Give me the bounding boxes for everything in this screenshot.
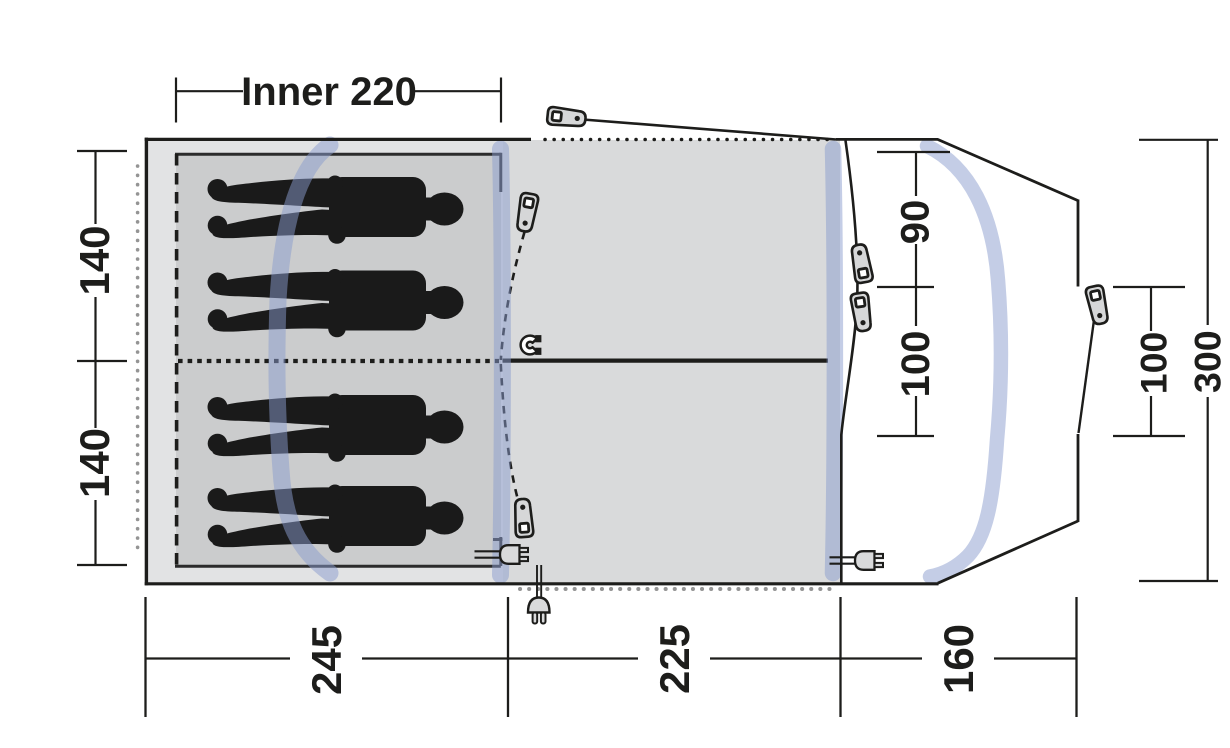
svg-text:245: 245: [303, 625, 350, 695]
svg-text:140: 140: [71, 225, 118, 295]
svg-text:140: 140: [71, 428, 118, 498]
svg-text:Inner 220: Inner 220: [241, 70, 417, 114]
svg-text:100: 100: [894, 331, 938, 398]
svg-text:300: 300: [1187, 330, 1229, 393]
svg-text:90: 90: [894, 200, 938, 245]
svg-text:160: 160: [935, 624, 982, 694]
svg-text:225: 225: [651, 624, 698, 694]
svg-text:100: 100: [1133, 332, 1175, 395]
